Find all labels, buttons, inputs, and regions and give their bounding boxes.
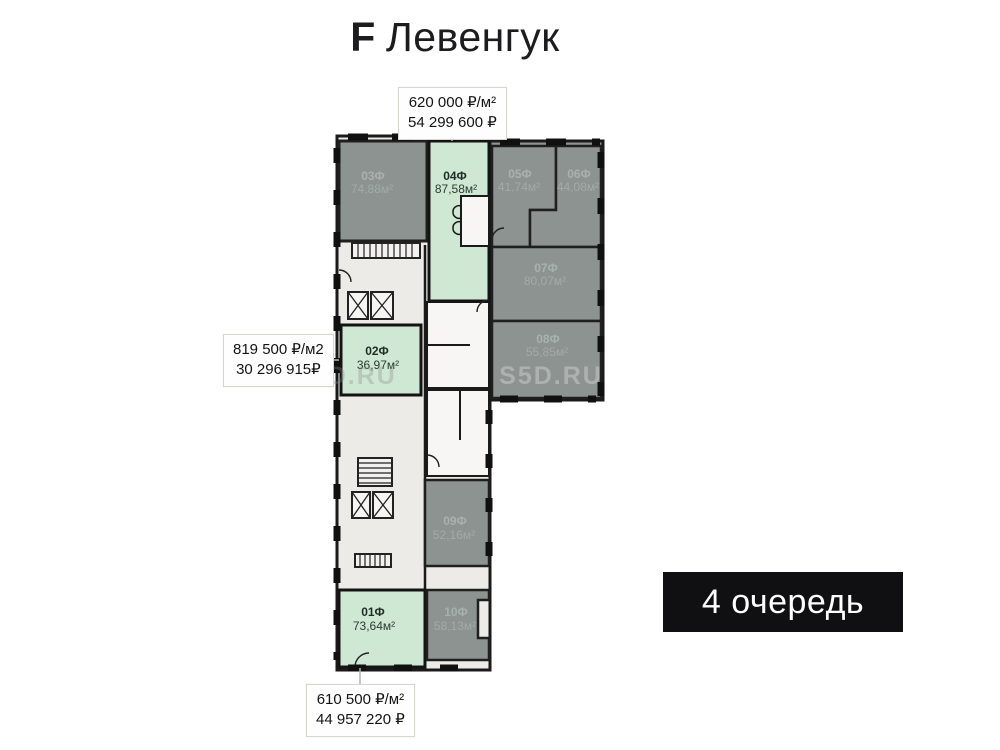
stairs-icon bbox=[358, 458, 392, 486]
apartment-04f[interactable]: 04Ф 87,58м² bbox=[429, 141, 489, 301]
price-callout-left: 819 500 ₽/м2 30 296 915₽ bbox=[223, 334, 334, 387]
price-per-m2: 620 000 ₽/м² bbox=[408, 93, 497, 113]
apartment-area: 73,64м² bbox=[353, 619, 395, 633]
apartment-01f[interactable]: 01Ф 73,64м² bbox=[339, 590, 425, 667]
apartment-id: 09Ф bbox=[443, 514, 467, 528]
queue-banner-label: 4 очередь bbox=[702, 583, 864, 622]
queue-banner: 4 очередь bbox=[663, 572, 903, 632]
apartment-id: 06Ф bbox=[567, 167, 591, 181]
stairs-icon bbox=[352, 243, 420, 258]
stairs-icon bbox=[355, 554, 391, 567]
apartment-03f[interactable]: 03Ф 74,88м² bbox=[339, 141, 427, 241]
price-total: 44 957 220 ₽ bbox=[316, 710, 405, 730]
elevator-icon bbox=[352, 492, 393, 518]
watermark-right: S5D.RU bbox=[499, 362, 603, 390]
apartment-area: 41,74м² bbox=[498, 180, 540, 194]
price-per-m2: 819 500 ₽/м2 bbox=[233, 340, 324, 360]
apartment-07f[interactable]: 07Ф 80,07м² bbox=[492, 247, 601, 321]
service-room bbox=[427, 390, 489, 476]
price-per-m2: 610 500 ₽/м² bbox=[316, 690, 405, 710]
apartment-09f[interactable]: 09Ф 52,16м² bbox=[425, 480, 489, 566]
apartment-area: 87,58м² bbox=[435, 182, 477, 196]
apartment-id: 08Ф bbox=[536, 332, 560, 346]
price-total: 30 296 915₽ bbox=[233, 360, 324, 380]
apartment-area: 80,07м² bbox=[524, 274, 566, 288]
apartment-id: 05Ф bbox=[508, 167, 532, 181]
elevator-icon bbox=[348, 292, 393, 319]
apartment-area: 52,16м² bbox=[433, 528, 475, 542]
apartment-id: 01Ф bbox=[361, 605, 385, 619]
apartment-area: 58,13м² bbox=[434, 619, 476, 633]
apartment-area: 74,88м² bbox=[351, 182, 393, 196]
apartment-id: 02Ф bbox=[365, 344, 389, 358]
price-total: 54 299 600 ₽ bbox=[408, 113, 497, 133]
price-callout-bottom: 610 500 ₽/м² 44 957 220 ₽ bbox=[306, 684, 415, 737]
apartment-area: 44,08м² bbox=[557, 180, 599, 194]
floorplan-page: FЛевенгук 03Ф 74,88м² 04Ф 87,58м² 05Ф bbox=[0, 0, 1000, 750]
apartment-id: 03Ф bbox=[361, 169, 385, 183]
apartment-id: 10Ф bbox=[444, 605, 468, 619]
price-callout-top: 620 000 ₽/м² 54 299 600 ₽ bbox=[398, 87, 507, 140]
apartment-area: 55,85м² bbox=[526, 345, 568, 359]
apartment-id: 04Ф bbox=[443, 169, 467, 183]
apartment-id: 07Ф bbox=[534, 261, 558, 275]
